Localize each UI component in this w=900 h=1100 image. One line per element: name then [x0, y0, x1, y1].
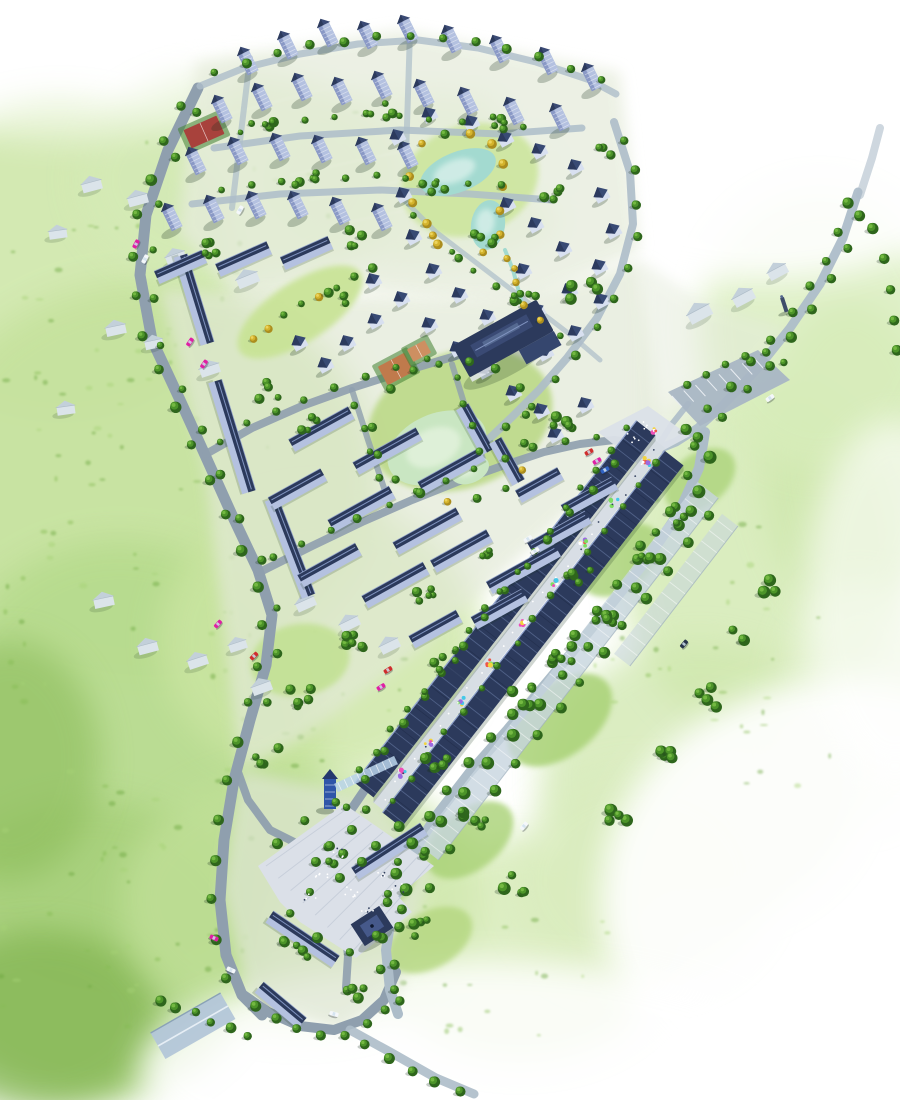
masterplan-canvas: [0, 0, 900, 1100]
aerial-masterplan-rendering: [0, 0, 900, 1100]
